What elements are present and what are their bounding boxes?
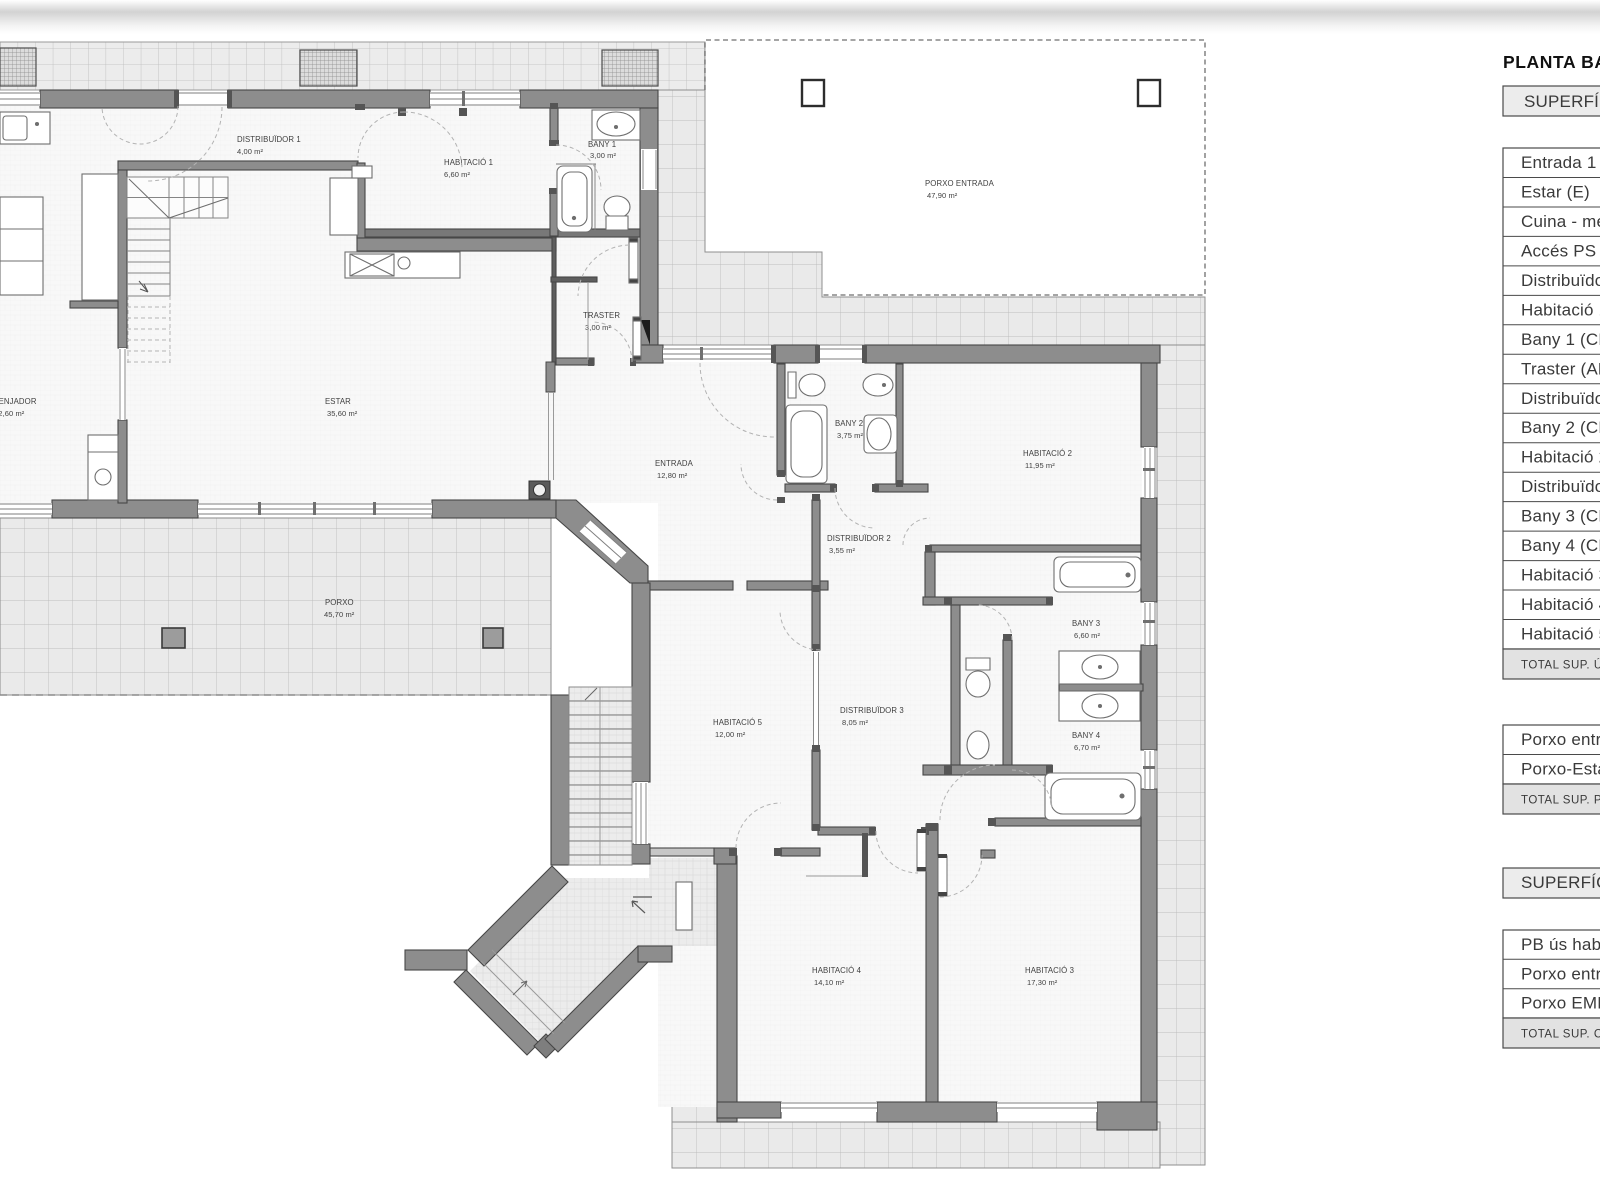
svg-text:Bany 4 (CH): Bany 4 (CH) <box>1521 536 1600 555</box>
svg-text:DISTRIBUÏDOR 3: DISTRIBUÏDOR 3 <box>840 706 904 715</box>
svg-text:HABITACIÓ 5: HABITACIÓ 5 <box>713 718 763 727</box>
svg-text:BANY 2: BANY 2 <box>835 419 863 428</box>
svg-text:PB ús habitatge: PB ús habitatge <box>1521 935 1600 954</box>
svg-text:Bany 3 (CH): Bany 3 (CH) <box>1521 507 1600 526</box>
svg-text:47,90 m²: 47,90 m² <box>927 191 958 200</box>
svg-text:Porxo entrada: Porxo entrada <box>1521 964 1600 983</box>
svg-text:HABITACIÓ 1: HABITACIÓ 1 <box>444 158 493 167</box>
svg-text:11,95 m²: 11,95 m² <box>1025 461 1055 470</box>
svg-text:12,00 m²: 12,00 m² <box>715 730 746 739</box>
svg-text:ESTAR: ESTAR <box>325 397 351 406</box>
svg-text:Porxo EMB: Porxo EMB <box>1521 994 1600 1013</box>
svg-text:PORXO ENTRADA: PORXO ENTRADA <box>925 179 995 188</box>
svg-text:Habitació 5: Habitació 5 <box>1521 625 1600 644</box>
svg-text:HABITACIÓ 3: HABITACIÓ 3 <box>1025 966 1074 975</box>
svg-text:12,60 m²: 12,60 m² <box>0 409 25 418</box>
svg-text:DISTRIBUÏDOR 2: DISTRIBUÏDOR 2 <box>827 534 891 543</box>
svg-text:PLANTA BAIXA: PLANTA BAIXA <box>1503 52 1600 72</box>
svg-text:BANY 3: BANY 3 <box>1072 619 1100 628</box>
svg-text:3,55 m²: 3,55 m² <box>829 546 856 555</box>
svg-text:TRASTER: TRASTER <box>583 311 620 320</box>
svg-text:Bany 1 (CH): Bany 1 (CH) <box>1521 330 1600 349</box>
svg-text:17,30 m²: 17,30 m² <box>1027 978 1058 987</box>
svg-text:14,10 m²: 14,10 m² <box>814 978 845 987</box>
svg-text:DISTRIBUÏDOR 1: DISTRIBUÏDOR 1 <box>237 135 301 144</box>
svg-text:BANY 1: BANY 1 <box>588 140 616 149</box>
svg-text:PORXO: PORXO <box>325 598 354 607</box>
svg-text:TOTAL SUP. CONST.: TOTAL SUP. CONST. <box>1521 1029 1600 1041</box>
svg-text:3,00 m²: 3,00 m² <box>585 323 612 332</box>
svg-text:SUPERFÍCIES CONST.: SUPERFÍCIES CONST. <box>1521 873 1600 892</box>
svg-text:6,70 m²: 6,70 m² <box>1074 743 1101 752</box>
svg-text:Traster (AE): Traster (AE) <box>1521 359 1600 378</box>
svg-text:Accés PS (E): Accés PS (E) <box>1521 241 1600 260</box>
svg-text:Bany 2 (CH): Bany 2 (CH) <box>1521 418 1600 437</box>
svg-text:Habitació 3: Habitació 3 <box>1521 566 1600 585</box>
svg-text:Habitació 2: Habitació 2 <box>1521 448 1600 467</box>
svg-text:6,60 m²: 6,60 m² <box>444 170 471 179</box>
svg-text:TOTAL SUP. PORXO: TOTAL SUP. PORXO <box>1521 795 1600 807</box>
svg-text:12,80 m²: 12,80 m² <box>657 471 688 480</box>
svg-text:SUPERFÍCIES ÚTILS: SUPERFÍCIES ÚTILS <box>1524 92 1600 111</box>
svg-text:Porxo-Estar: Porxo-Estar <box>1521 760 1600 779</box>
svg-text:HABITACIÓ 4: HABITACIÓ 4 <box>812 966 862 975</box>
svg-text:HABITACIÓ 2: HABITACIÓ 2 <box>1023 449 1072 458</box>
svg-text:TOTAL SUP. ÚTIL: TOTAL SUP. ÚTIL <box>1521 659 1600 672</box>
svg-text:Habitació 4: Habitació 4 <box>1521 595 1600 614</box>
svg-text:4,00 m²: 4,00 m² <box>237 147 264 156</box>
svg-text:Cuina - menjador: Cuina - menjador <box>1521 212 1600 231</box>
svg-text:6,60 m²: 6,60 m² <box>1074 631 1101 640</box>
svg-text:8,05 m²: 8,05 m² <box>842 718 869 727</box>
svg-text:45,70 m²: 45,70 m² <box>324 610 355 619</box>
svg-text:Habitació 1: Habitació 1 <box>1521 300 1600 319</box>
svg-text:3,00 m²: 3,00 m² <box>590 151 617 160</box>
svg-text:35,60 m²: 35,60 m² <box>327 409 358 418</box>
svg-text:ENTRADA: ENTRADA <box>655 459 694 468</box>
svg-text:Entrada 1 (E): Entrada 1 (E) <box>1521 153 1600 172</box>
svg-text:MENJADOR: MENJADOR <box>0 397 37 406</box>
svg-text:3,75 m²: 3,75 m² <box>837 431 864 440</box>
svg-text:Distribuïdor 2: Distribuïdor 2 <box>1521 389 1600 408</box>
svg-text:Distribuïdor 3: Distribuïdor 3 <box>1521 477 1600 496</box>
svg-text:Distribuïdor 1: Distribuïdor 1 <box>1521 271 1600 290</box>
svg-text:Porxo entrada: Porxo entrada <box>1521 730 1600 749</box>
svg-text:Estar (E): Estar (E) <box>1521 183 1590 202</box>
svg-text:BANY 4: BANY 4 <box>1072 731 1101 740</box>
